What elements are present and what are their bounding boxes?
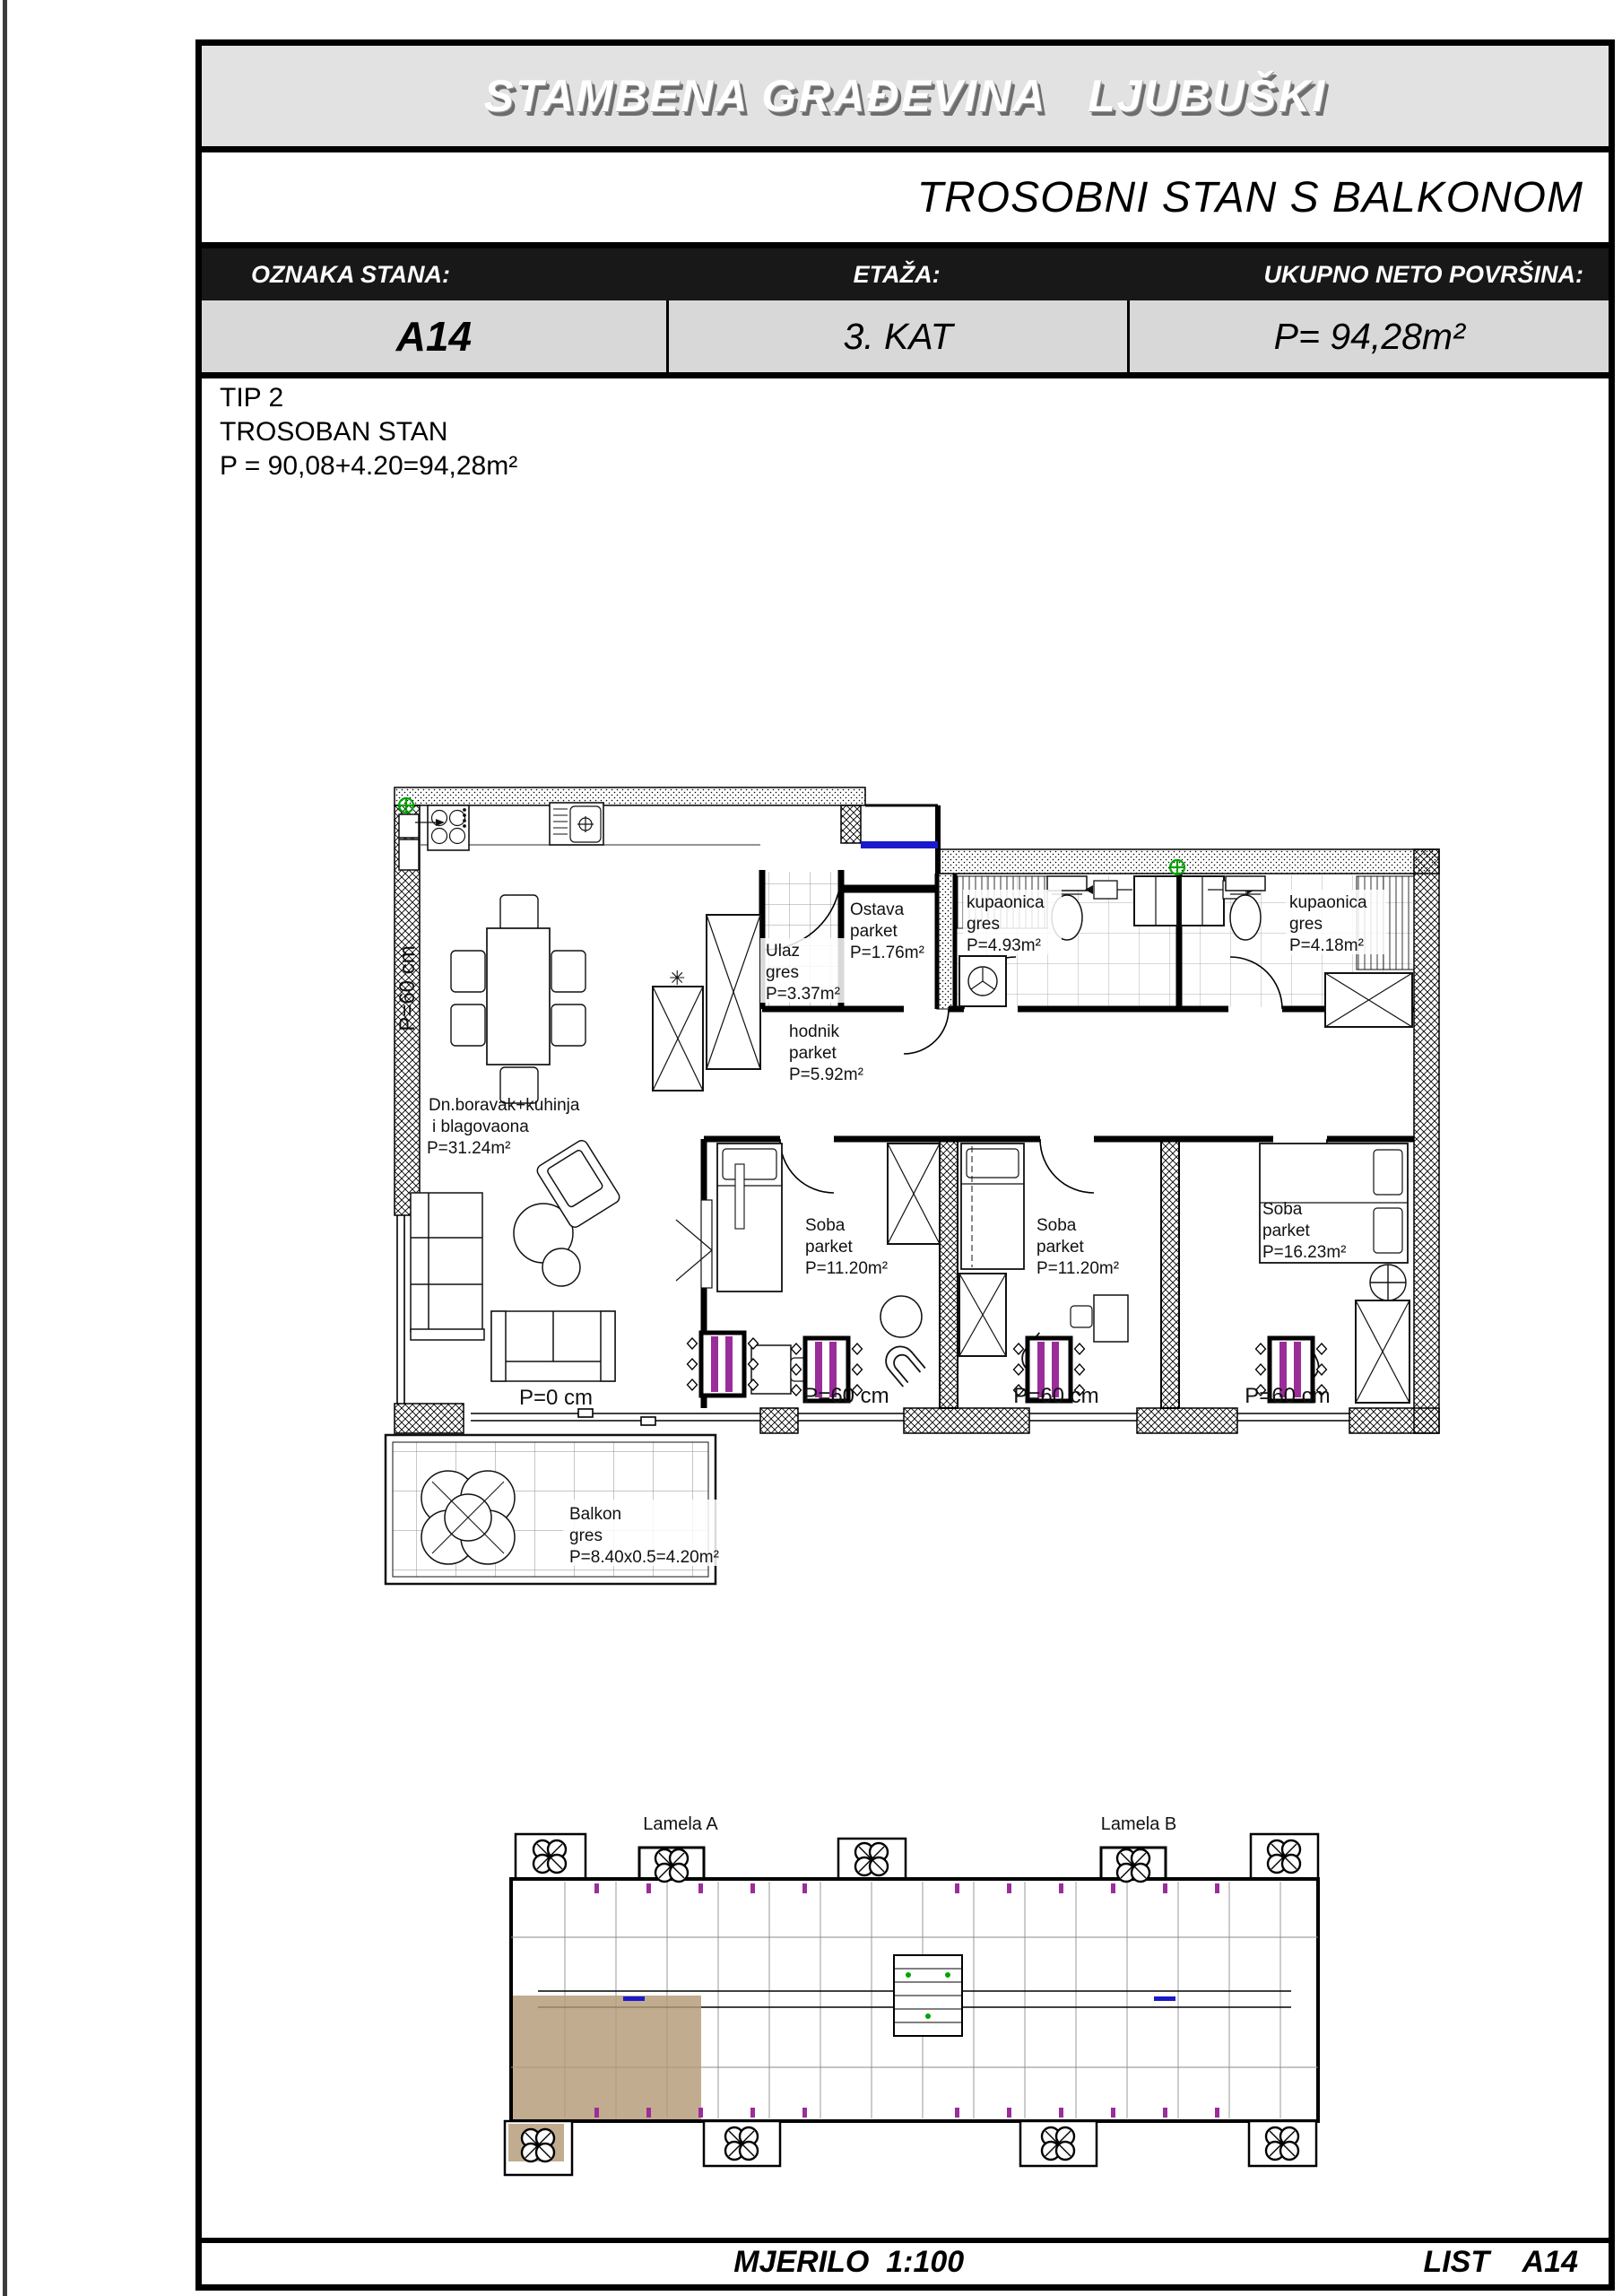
stair-clover-icon xyxy=(1266,2127,1298,2160)
svg-text:parket: parket xyxy=(805,1238,854,1257)
soba-2-label: Soba xyxy=(1037,1216,1077,1235)
sheet-header: STAMBENA GRAĐEVINA LJUBUŠKI xyxy=(202,46,1609,152)
floor-plan: ✳ xyxy=(377,780,1462,1619)
info-table-value-row: A14 3. KAT P= 94,28m² xyxy=(202,300,1609,378)
svg-text:P=31.24m²: P=31.24m² xyxy=(427,1139,510,1158)
svg-text:P=1.76m²: P=1.76m² xyxy=(850,944,924,962)
svg-text:parket: parket xyxy=(1037,1238,1085,1257)
title-block-footer: MJERILO 1:100 LIST A14 xyxy=(202,2238,1609,2284)
tip-line-3: P = 90,08+4.20=94,28m² xyxy=(220,449,517,483)
project-title: STAMBENA GRAĐEVINA LJUBUŠKI xyxy=(484,70,1327,122)
drawing-sheet: STAMBENA GRAĐEVINA LJUBUŠKI TROSOBNI STA… xyxy=(0,0,1622,2296)
svg-text:i blagovaona: i blagovaona xyxy=(432,1118,529,1136)
soba-1-label: Soba xyxy=(805,1216,846,1235)
svg-text:parket: parket xyxy=(850,922,898,941)
entry-door-blue xyxy=(861,841,938,848)
svg-text:gres: gres xyxy=(967,915,1000,934)
hall-wardrobes xyxy=(653,915,760,1091)
tip-line-1: TIP 2 xyxy=(220,381,517,415)
povrsina-header: UKUPNO NETO POVRŠINA: xyxy=(1127,261,1609,289)
svg-text:P=16.23m²: P=16.23m² xyxy=(1262,1243,1346,1262)
ceiling-symbol-icon xyxy=(1370,1265,1406,1300)
ostava-label: Ostava xyxy=(850,900,905,919)
svg-text:gres: gres xyxy=(1289,915,1323,934)
green-utility-icon xyxy=(399,798,413,813)
sheet-frame: STAMBENA GRAĐEVINA LJUBUŠKI TROSOBNI STA… xyxy=(195,39,1615,2291)
etaza-value: 3. KAT xyxy=(666,300,1128,372)
svg-text:P=11.20m²: P=11.20m² xyxy=(1037,1259,1119,1278)
hodnik-label: hodnik xyxy=(789,1022,839,1041)
radiator-icon xyxy=(688,1333,759,1396)
svg-text:P=8.40x0.5=4.20m²: P=8.40x0.5=4.20m² xyxy=(569,1548,719,1567)
stair-clover-icon xyxy=(1268,1840,1300,1873)
svg-text:parket: parket xyxy=(789,1044,837,1063)
living-label: Dn.boravak+kuhinja xyxy=(429,1096,580,1115)
oznaka-stana-header: OZNAKA STANA: xyxy=(202,261,666,289)
stair-clover-icon xyxy=(855,1843,888,1875)
stair-clover-icon xyxy=(522,2129,554,2161)
stair-clover-icon xyxy=(1117,1849,1149,1882)
scan-edge-line xyxy=(3,0,7,2296)
dim-window-3: P=60 cm xyxy=(1245,1384,1330,1408)
povrsina-value: P= 94,28m² xyxy=(1127,300,1609,372)
balcony-table-icon xyxy=(421,1471,515,1564)
sink-icon xyxy=(550,803,603,845)
dim-window-2: P=60 cm xyxy=(1013,1384,1098,1408)
dim-balcony-door: P=0 cm xyxy=(519,1386,593,1410)
stair-clover-icon xyxy=(1042,2127,1074,2160)
green-vent-icon xyxy=(1170,860,1184,874)
dim-window-1: P=60 cm xyxy=(803,1384,889,1408)
lamela-b-label: Lamela B xyxy=(1101,1814,1177,1834)
svg-text:P=5.92m²: P=5.92m² xyxy=(789,1065,863,1084)
svg-text:P=11.20m²: P=11.20m² xyxy=(805,1259,888,1278)
stair-clover-icon xyxy=(655,1849,688,1882)
washing-machine-icon xyxy=(959,956,1006,1006)
sheet-subtitle-band: TROSOBNI STAN S BALKONOM xyxy=(202,152,1609,248)
dining-table xyxy=(451,895,585,1103)
type-description-block: TIP 2 TROSOBAN STAN P = 90,08+4.20=94,28… xyxy=(220,381,517,483)
svg-text:parket: parket xyxy=(1262,1222,1311,1240)
chair-icon xyxy=(880,1341,925,1387)
dim-left-wall: P=60 cm xyxy=(395,945,420,1031)
balkon-label: Balkon xyxy=(569,1505,621,1524)
lamela-a-label: Lamela A xyxy=(643,1814,718,1834)
shaft-marker-icon: ✳ xyxy=(669,967,685,989)
svg-text:P=4.18m²: P=4.18m² xyxy=(1289,936,1364,955)
stove-icon xyxy=(415,805,469,850)
sheet-number-label: LIST A14 xyxy=(1423,2245,1578,2280)
kitchen-fixtures xyxy=(399,798,603,870)
soba-3-label: Soba xyxy=(1262,1200,1303,1219)
kupaonica-1-label: kupaonica xyxy=(967,893,1045,912)
kupaonica-2-label: kupaonica xyxy=(1289,893,1367,912)
svg-text:P=3.37m²: P=3.37m² xyxy=(766,985,840,1004)
svg-text:P=4.93m²: P=4.93m² xyxy=(967,936,1041,955)
building-overview: Lamela A Lamela B xyxy=(489,1812,1367,2211)
oznaka-stana-value: A14 xyxy=(202,300,666,372)
info-table-header-row: OZNAKA STANA: ETAŽA: UKUPNO NETO POVRŠIN… xyxy=(202,248,1609,300)
scale-label: MJERILO 1:100 xyxy=(733,2245,964,2280)
tip-line-2: TROSOBAN STAN xyxy=(220,415,517,449)
svg-text:gres: gres xyxy=(569,1526,603,1545)
svg-text:gres: gres xyxy=(766,963,799,982)
stair-clover-icon xyxy=(725,2127,758,2160)
ulaz-label: Ulaz xyxy=(766,942,800,961)
etaza-header: ETAŽA: xyxy=(666,261,1128,289)
stair-clover-icon xyxy=(533,1840,566,1873)
sofa-set xyxy=(411,1138,712,1381)
apartment-type-title: TROSOBNI STAN S BALKONOM xyxy=(917,173,1583,222)
